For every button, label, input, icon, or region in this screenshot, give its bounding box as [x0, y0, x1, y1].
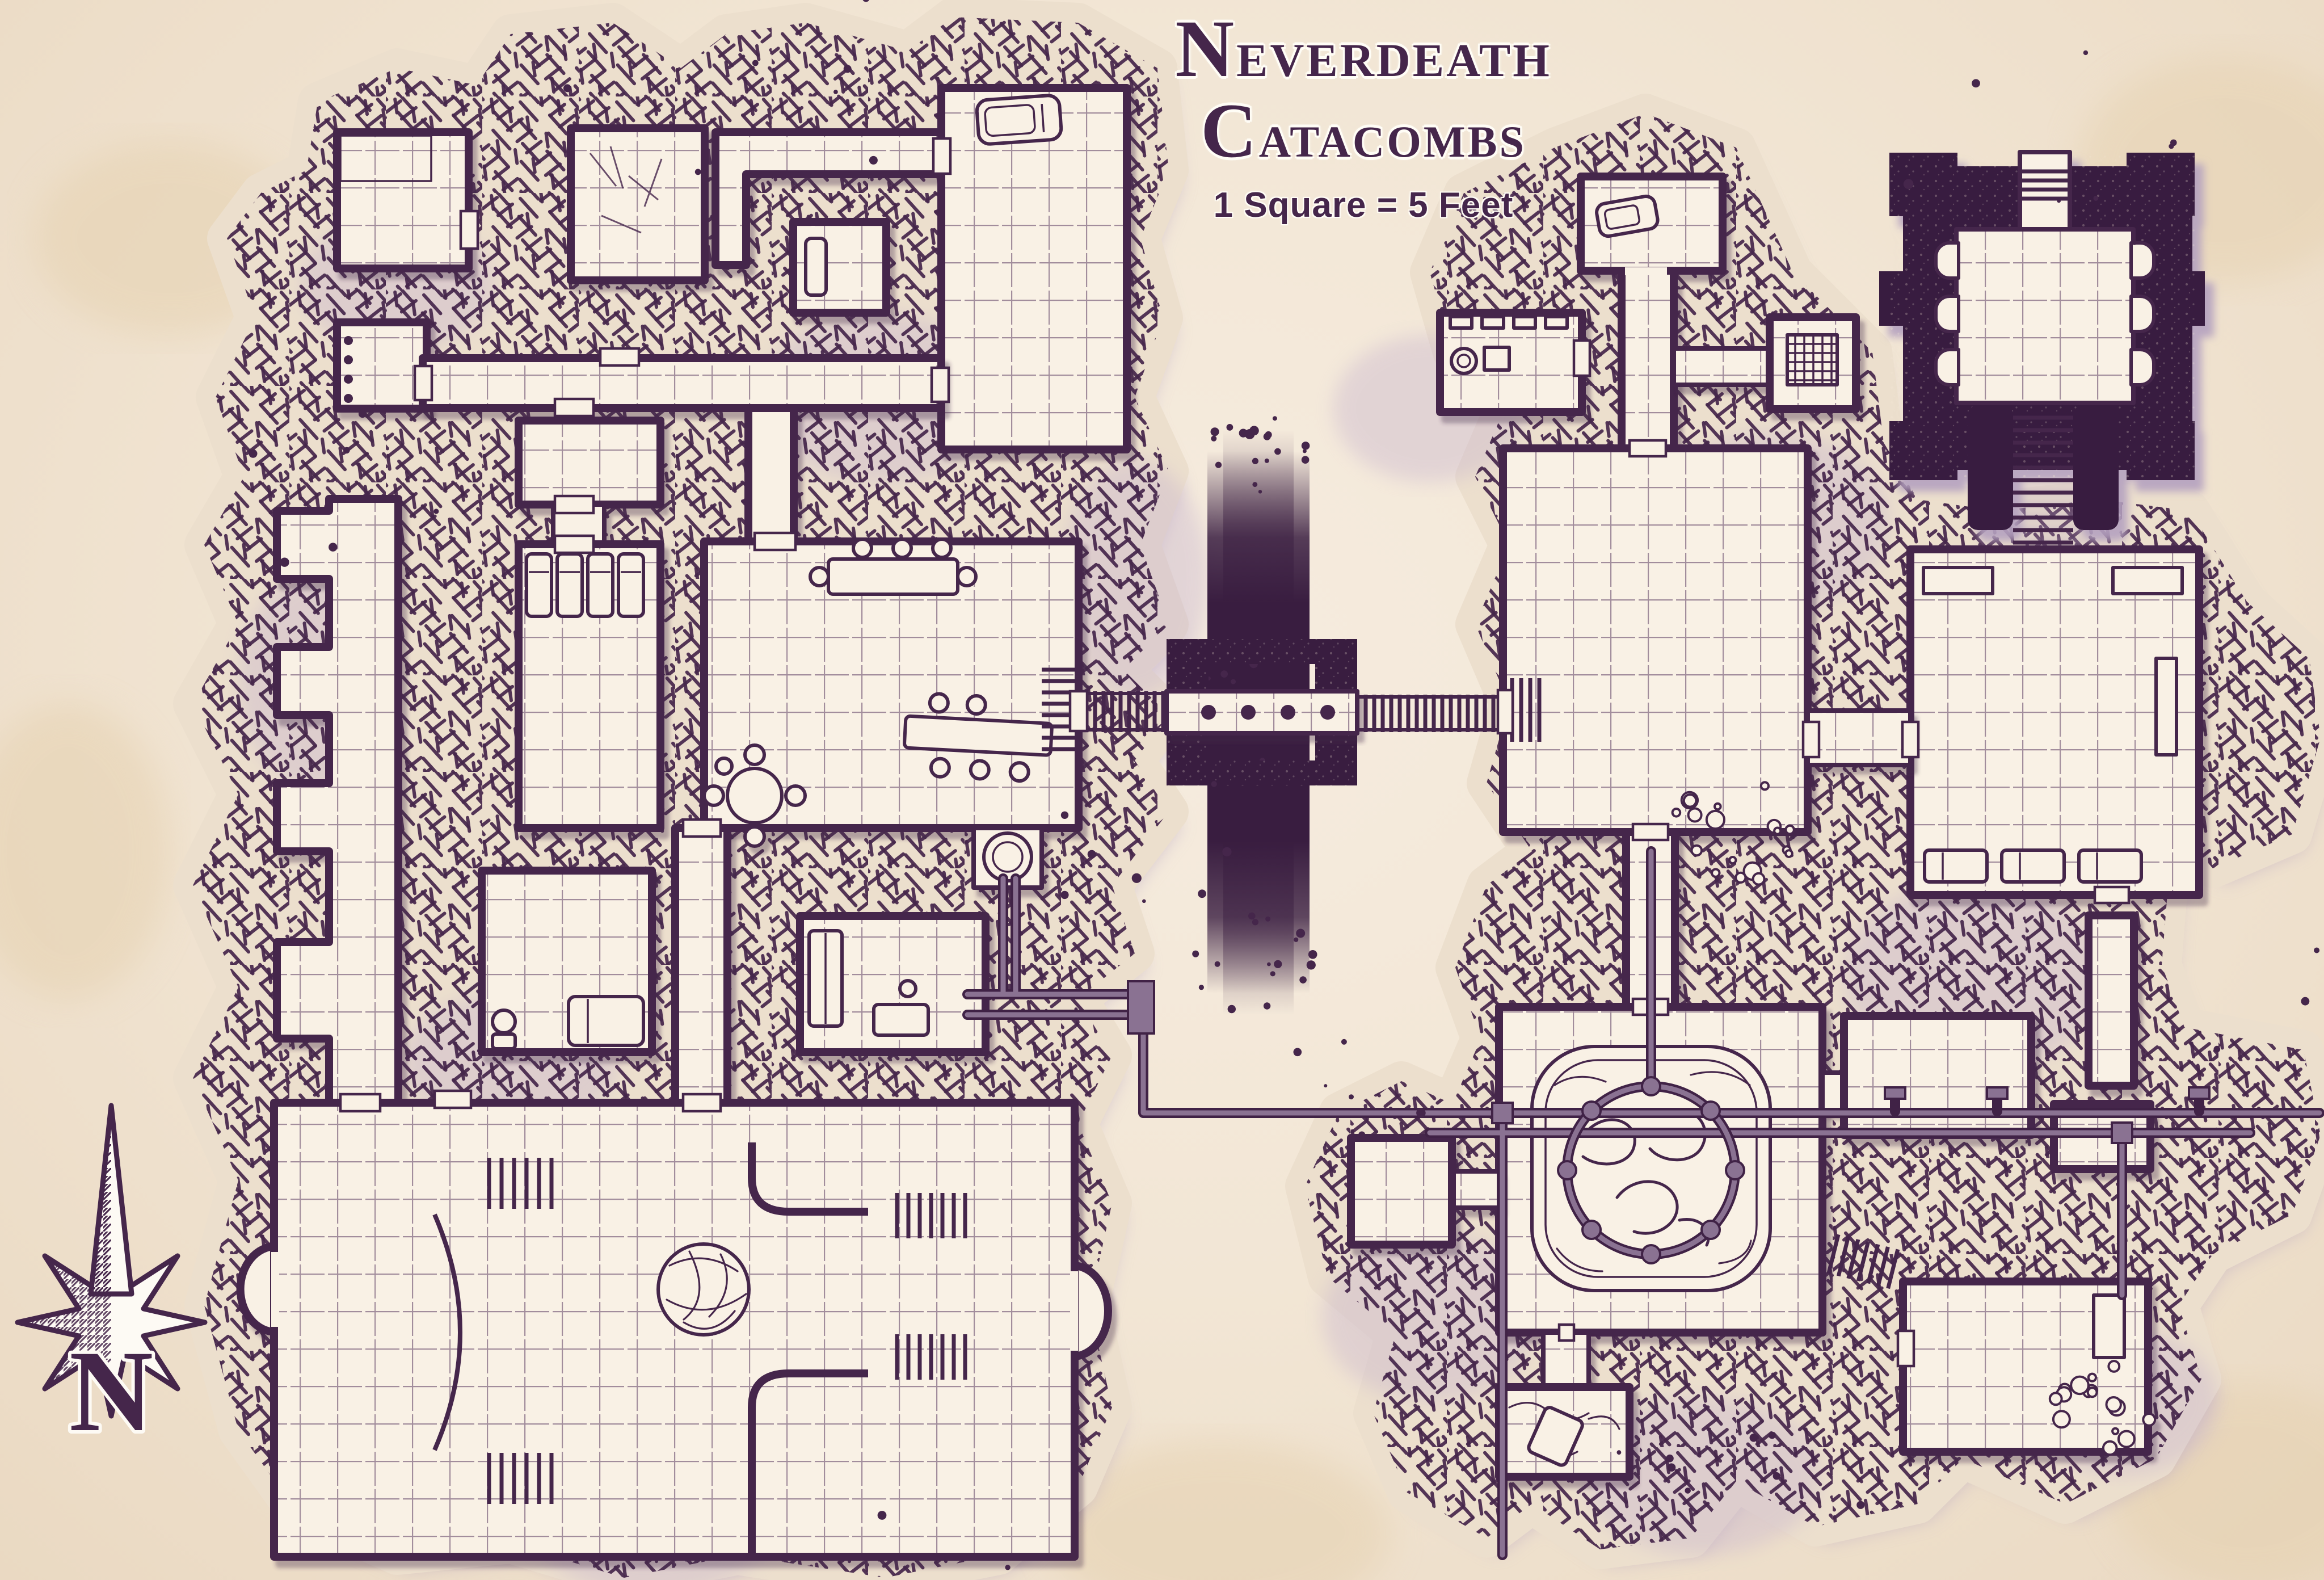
plank-bridge-east — [1357, 695, 1503, 732]
map-scale-note: 1 Square = 5 Feet — [1168, 185, 1559, 225]
room-bedroom — [482, 871, 652, 1052]
map-title-line-2: Catacombs — [1168, 91, 1559, 170]
pipe-junction-box — [1128, 981, 1154, 1033]
room-bottle-cell — [337, 322, 427, 409]
room-closet-n — [793, 222, 886, 313]
map-canvas: N — [0, 0, 2324, 1580]
map-title-line-1: Neverdeath — [1168, 8, 1559, 91]
corridor-hall-connector — [675, 828, 727, 1103]
room-bunk-barracks — [519, 544, 660, 828]
bed-icon — [569, 997, 643, 1045]
wardrobe-icon — [809, 931, 842, 1026]
room-study — [800, 916, 986, 1052]
room-sarcophagus-hall — [941, 88, 1127, 449]
corridor-guard-chapel — [1808, 711, 1910, 765]
great-hall — [241, 1103, 1108, 1557]
toilet-icon — [492, 1010, 515, 1049]
floor-grate-icon — [1787, 335, 1837, 385]
title-block: Neverdeath Catacombs 1 Square = 5 Feet — [1168, 8, 1559, 225]
room-guard-hall — [1503, 448, 1808, 832]
room-storage-nw — [337, 132, 469, 268]
cabinet-icon — [2094, 1295, 2124, 1358]
bridge-walkway — [1167, 691, 1357, 733]
room-mess-hall — [704, 539, 1079, 846]
room-southeast — [1903, 1281, 2155, 1455]
compass-north-label: N — [69, 1327, 153, 1456]
compass-rose: N — [18, 1106, 205, 1456]
cot-icons — [1925, 850, 2141, 882]
sarcophagus-icon — [976, 95, 1062, 145]
room-scratched-cell — [571, 128, 705, 280]
room-narrow-store — [2089, 915, 2134, 1086]
room-pool-chamber — [1499, 1007, 1822, 1333]
room-chapel — [1910, 549, 2199, 895]
room-workshop — [1440, 313, 1582, 412]
stairs-landing — [748, 408, 794, 541]
corridor-main-west — [423, 358, 941, 408]
map-page: N Neverdeath Catacombs 1 Square = 5 Feet — [0, 0, 2324, 1580]
web-ball-icon — [658, 1244, 749, 1335]
